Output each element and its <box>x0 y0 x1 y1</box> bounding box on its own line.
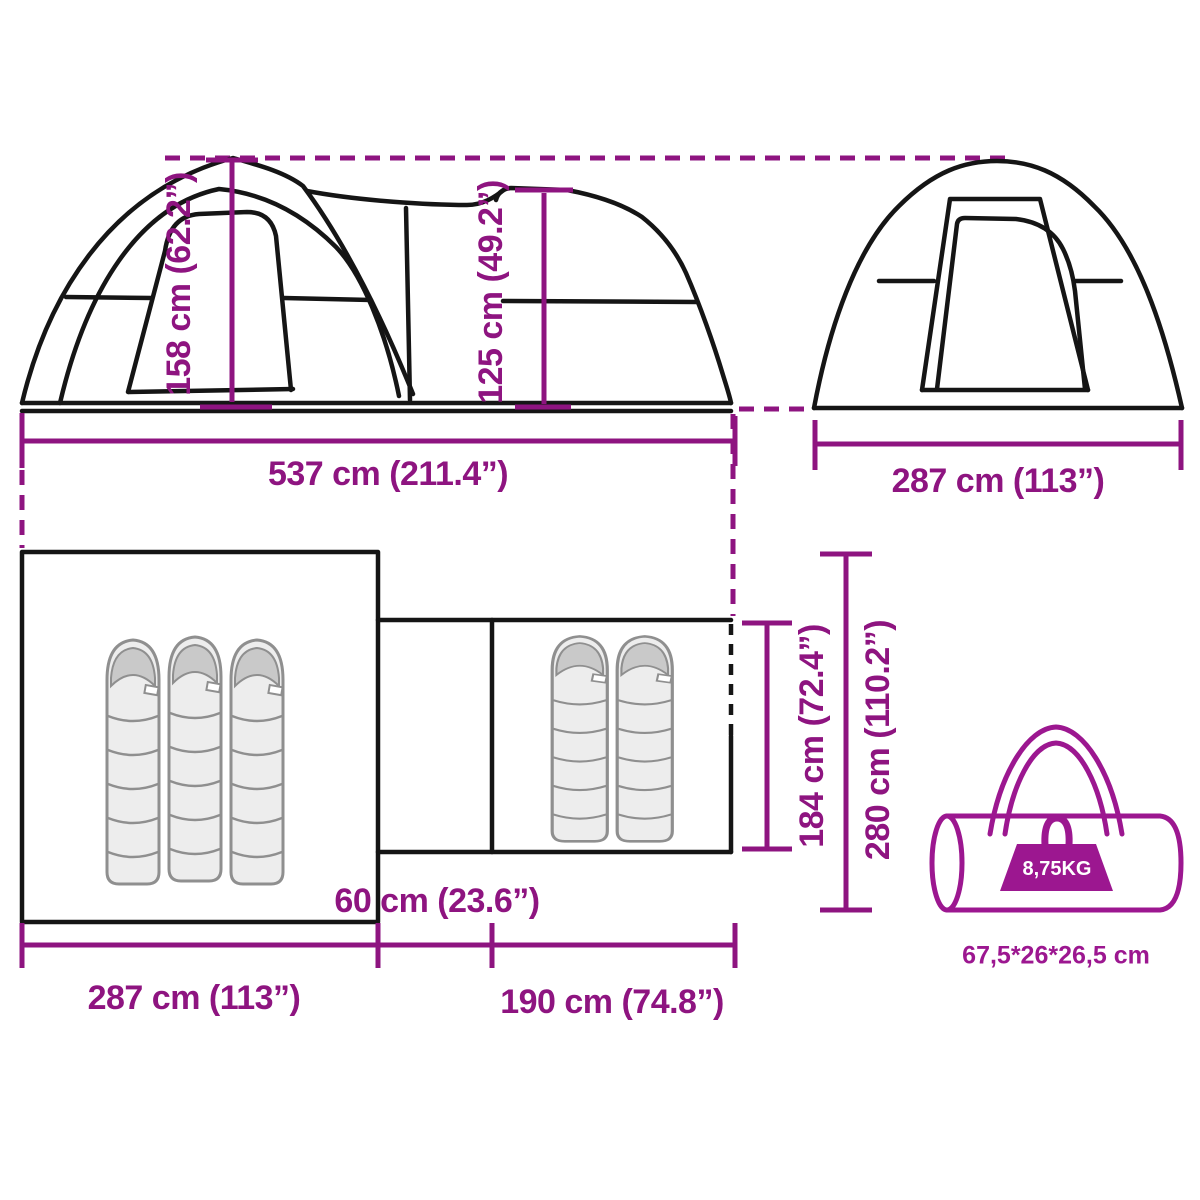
carry-bag-icon <box>932 727 1181 910</box>
weight-icon <box>1000 818 1113 891</box>
tent-side-view-outline <box>22 158 731 411</box>
side-view-rear-height-label: 125 cm (49.2”) <box>474 180 508 404</box>
bedroom-sleeping-bags <box>107 637 283 884</box>
tent-front-view-outline <box>814 161 1182 408</box>
floor-porch-width-label: 190 cm (74.8”) <box>500 985 724 1019</box>
side-view-peak-height-label: 158 cm (62.2”) <box>162 172 196 396</box>
front-view-width-label: 287 cm (113”) <box>892 464 1105 498</box>
dim-floor-bottom-line <box>22 923 735 968</box>
porch-sleeping-bags <box>552 636 672 841</box>
floor-inner-depth-label: 184 cm (72.4”) <box>795 624 829 848</box>
carry-bag-weight-label: 8,75KG <box>1023 859 1092 879</box>
tent-dimension-diagram: 158 cm (62.2”) 125 cm (49.2”) 537 cm (21… <box>0 0 1200 1200</box>
floor-bedroom-width-label: 287 cm (113”) <box>88 981 301 1015</box>
dim-rear-height-line <box>515 190 573 407</box>
side-view-length-label: 537 cm (211.4”) <box>268 457 508 491</box>
carry-bag-size-label: 67,5*26*26,5 cm <box>962 944 1150 969</box>
floor-connector-width-label: 60 cm (23.6”) <box>334 884 539 918</box>
dim-inner-depth-line <box>742 623 792 849</box>
floor-total-depth-label: 280 cm (110.2”) <box>861 620 895 860</box>
